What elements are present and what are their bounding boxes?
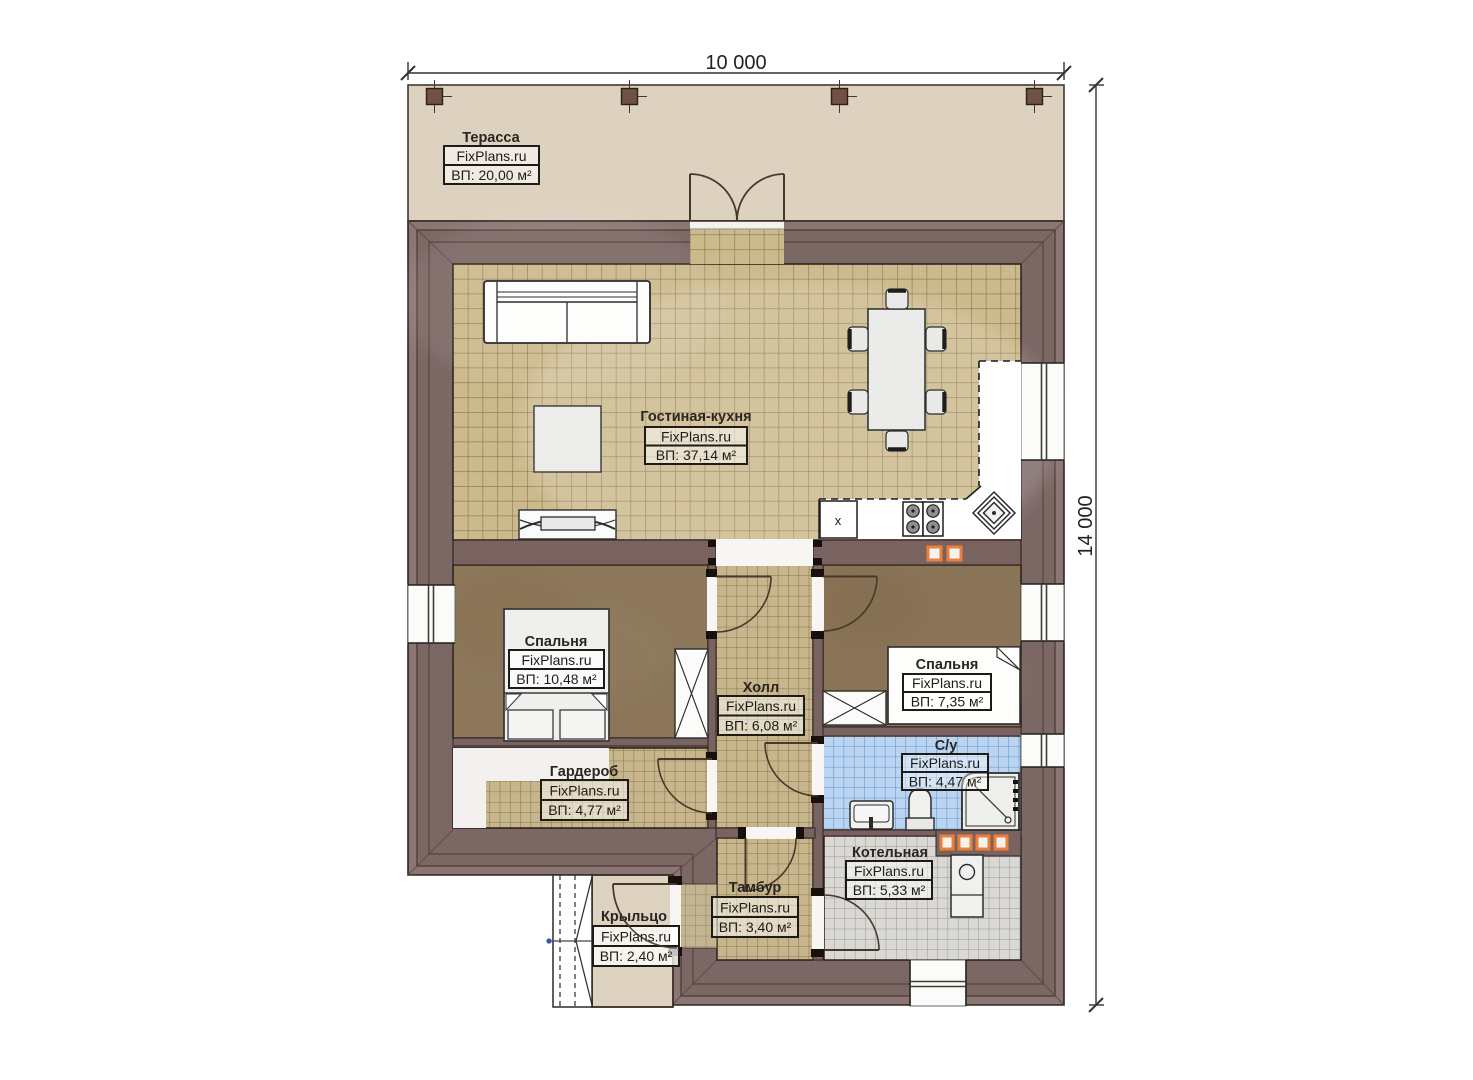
- svg-text:Терасса: Терасса: [462, 130, 520, 146]
- svg-text:x: x: [835, 513, 842, 528]
- svg-text:Котельная: Котельная: [852, 845, 928, 861]
- svg-text:FixPlans.ru: FixPlans.ru: [912, 675, 982, 691]
- svg-text:ВП: 5,33 м²: ВП: 5,33 м²: [853, 882, 926, 898]
- svg-text:ВП: 10,48 м²: ВП: 10,48 м²: [516, 671, 597, 687]
- svg-text:ВП: 4,47 м²: ВП: 4,47 м²: [909, 774, 982, 790]
- svg-text:FixPlans.ru: FixPlans.ru: [521, 652, 591, 668]
- svg-text:Гостиная-кухня: Гостиная-кухня: [640, 409, 751, 425]
- svg-text:FixPlans.ru: FixPlans.ru: [456, 148, 526, 164]
- svg-text:FixPlans.ru: FixPlans.ru: [601, 929, 671, 945]
- svg-text:Гардероб: Гардероб: [550, 764, 619, 780]
- svg-text:FixPlans.ru: FixPlans.ru: [720, 900, 790, 916]
- svg-text:ВП: 37,14 м²: ВП: 37,14 м²: [656, 447, 737, 463]
- svg-text:FixPlans.ru: FixPlans.ru: [910, 755, 980, 771]
- svg-text:Спальня: Спальня: [916, 657, 979, 673]
- svg-text:14 000: 14 000: [1075, 495, 1097, 556]
- svg-text:Холл: Холл: [743, 680, 779, 696]
- svg-text:FixPlans.ru: FixPlans.ru: [854, 863, 924, 879]
- svg-text:10 000: 10 000: [705, 52, 766, 74]
- svg-text:ВП: 4,77 м²: ВП: 4,77 м²: [548, 802, 621, 818]
- svg-text:Тамбур: Тамбур: [729, 880, 782, 896]
- svg-text:ВП: 2,40 м²: ВП: 2,40 м²: [600, 948, 673, 964]
- svg-text:FixPlans.ru: FixPlans.ru: [661, 429, 731, 445]
- svg-text:ВП: 6,08 м²: ВП: 6,08 м²: [725, 718, 798, 734]
- svg-text:С/у: С/у: [935, 738, 958, 754]
- svg-text:Спальня: Спальня: [525, 634, 588, 650]
- svg-text:ВП: 3,40 м²: ВП: 3,40 м²: [719, 919, 792, 935]
- svg-text:Крыльцо: Крыльцо: [601, 909, 667, 925]
- svg-text:ВП: 20,00 м²: ВП: 20,00 м²: [451, 167, 532, 183]
- svg-text:FixPlans.ru: FixPlans.ru: [726, 698, 796, 714]
- svg-text:ВП: 7,35 м²: ВП: 7,35 м²: [911, 694, 984, 710]
- svg-text:FixPlans.ru: FixPlans.ru: [549, 783, 619, 799]
